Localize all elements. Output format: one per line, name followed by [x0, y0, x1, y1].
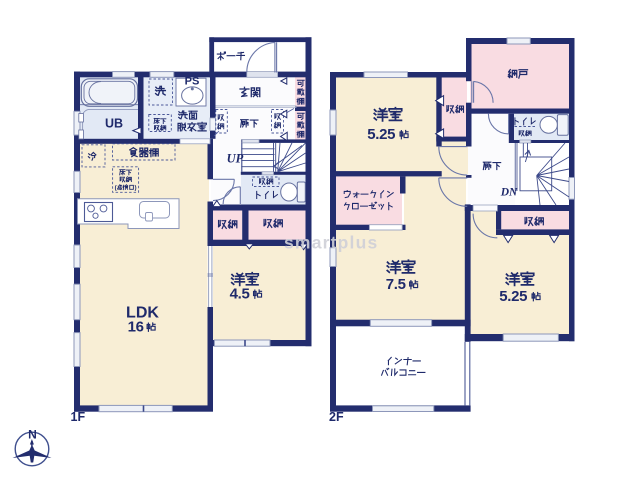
svg-text:UB: UB: [105, 117, 123, 131]
svg-text:UP: UP: [227, 152, 244, 166]
svg-text:1F: 1F: [71, 410, 86, 424]
svg-text:smartplus: smartplus: [284, 233, 378, 253]
svg-text:): ): [135, 185, 137, 192]
svg-text:4.5: 4.5: [230, 286, 250, 303]
svg-text:N: N: [28, 428, 37, 442]
svg-text:5.25: 5.25: [367, 126, 395, 143]
svg-text:2F: 2F: [329, 410, 344, 424]
svg-text:7.5: 7.5: [386, 276, 406, 293]
svg-text:5.25: 5.25: [499, 288, 527, 305]
svg-text:16: 16: [128, 319, 144, 336]
svg-text:DN: DN: [500, 187, 518, 199]
svg-text:PS: PS: [185, 76, 200, 88]
